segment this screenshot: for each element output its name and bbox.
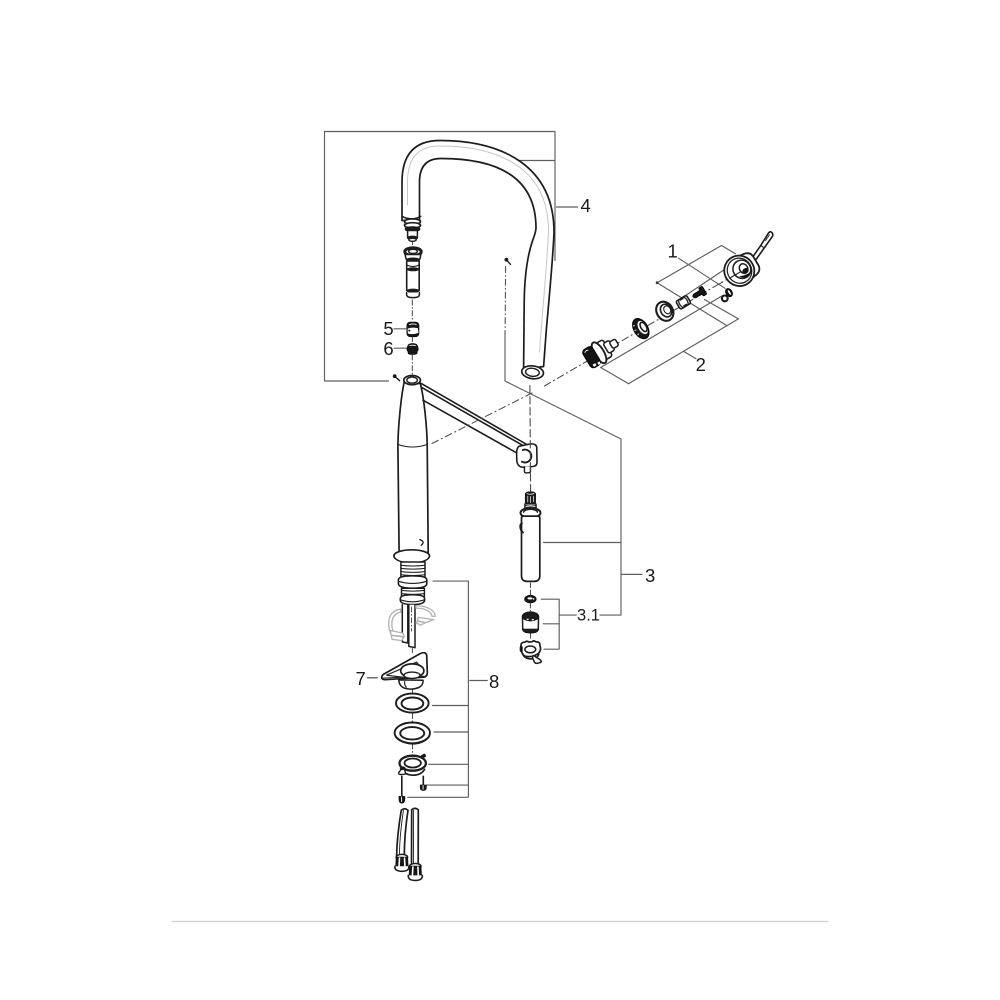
svg-text:5: 5	[383, 318, 393, 339]
svg-text:7: 7	[356, 668, 366, 689]
svg-text:2: 2	[696, 354, 706, 375]
svg-text:3.1: 3.1	[577, 607, 600, 625]
svg-text:1: 1	[667, 241, 677, 262]
svg-text:3: 3	[645, 565, 655, 586]
svg-text:4: 4	[580, 195, 590, 216]
svg-text:6: 6	[383, 338, 393, 359]
svg-text:8: 8	[489, 671, 499, 692]
